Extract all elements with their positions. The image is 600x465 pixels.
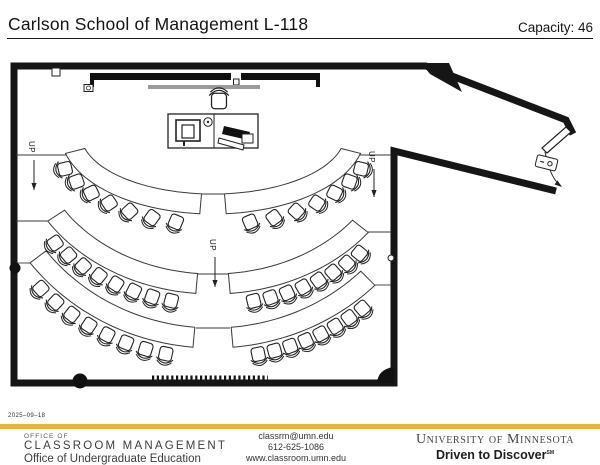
seat	[244, 292, 265, 314]
table-row-band	[225, 149, 361, 214]
footer-brand: University of Minnesota Driven to Discov…	[400, 432, 590, 462]
contact-email: classrm@umn.edu	[216, 431, 376, 442]
seat	[140, 287, 162, 310]
sm-mark: SM	[546, 450, 554, 456]
up-label: UP	[27, 141, 36, 153]
outlet-right-wall	[388, 255, 394, 261]
seating-rows	[27, 149, 377, 368]
seat	[240, 212, 263, 235]
footer-contact: classrm@umn.edu 612-625-1086 www.classro…	[216, 431, 376, 464]
university-wordmark: University of Minnesota	[400, 432, 590, 448]
wall-pilaster	[10, 263, 21, 274]
seat	[263, 207, 287, 232]
table-row-band	[66, 149, 202, 214]
driven-to-discover-tagline: Driven to DiscoverSM	[400, 448, 590, 462]
up-marker: UP	[27, 141, 37, 190]
whiteboard-endcap-right	[316, 73, 320, 87]
door-swing-arrowhead	[555, 181, 563, 188]
wall-outlet-icon	[84, 85, 93, 92]
gold-divider	[0, 424, 600, 429]
seat	[115, 200, 140, 225]
footer-left: OFFICE OF CLASSROOM MANAGEMENT Office of…	[24, 433, 227, 465]
seat	[160, 292, 181, 314]
office-of-label: OFFICE OF	[24, 433, 227, 440]
up-label: UP	[367, 151, 376, 163]
document-camera-icon	[204, 118, 212, 126]
contact-web: www.classroom.umn.edu	[216, 453, 376, 464]
seat	[209, 88, 229, 109]
seat	[138, 207, 162, 232]
column	[73, 374, 88, 389]
up-label: UP	[208, 239, 217, 251]
contact-phone: 612-625-1086	[216, 442, 376, 453]
whiteboard-bracket	[234, 79, 240, 85]
door-leaf	[542, 127, 571, 153]
light-switch-icon	[535, 155, 558, 172]
seat	[155, 345, 175, 366]
seat	[121, 281, 144, 305]
instructor-chair	[209, 88, 229, 109]
seat	[286, 200, 311, 225]
up-marker: UP	[208, 239, 218, 287]
seat	[114, 333, 137, 356]
seat	[249, 346, 269, 367]
undergraduate-education-label: Office of Undergraduate Education	[24, 453, 227, 465]
seat	[134, 340, 156, 362]
up-arrowhead	[31, 183, 36, 190]
up-arrowhead	[371, 190, 376, 197]
seat	[94, 325, 118, 349]
classroom-management-label: CLASSROOM MANAGEMENT	[24, 440, 227, 452]
whiteboard	[90, 73, 320, 80]
seat	[76, 315, 100, 340]
plan-date: 2025–09–18	[8, 413, 45, 419]
projection-screen	[148, 85, 260, 89]
floor-plan-drawing: UPUPUP	[0, 0, 600, 464]
corner-block	[377, 367, 394, 383]
seat	[164, 212, 187, 235]
front-teaching-wall	[90, 72, 320, 89]
control-box-icon	[242, 134, 253, 143]
floor-plan-page: { "header": { "title": "Carlson School o…	[0, 0, 600, 464]
instructor-station	[168, 88, 258, 150]
up-arrowhead	[212, 280, 217, 287]
thermostat-icon	[52, 68, 60, 76]
